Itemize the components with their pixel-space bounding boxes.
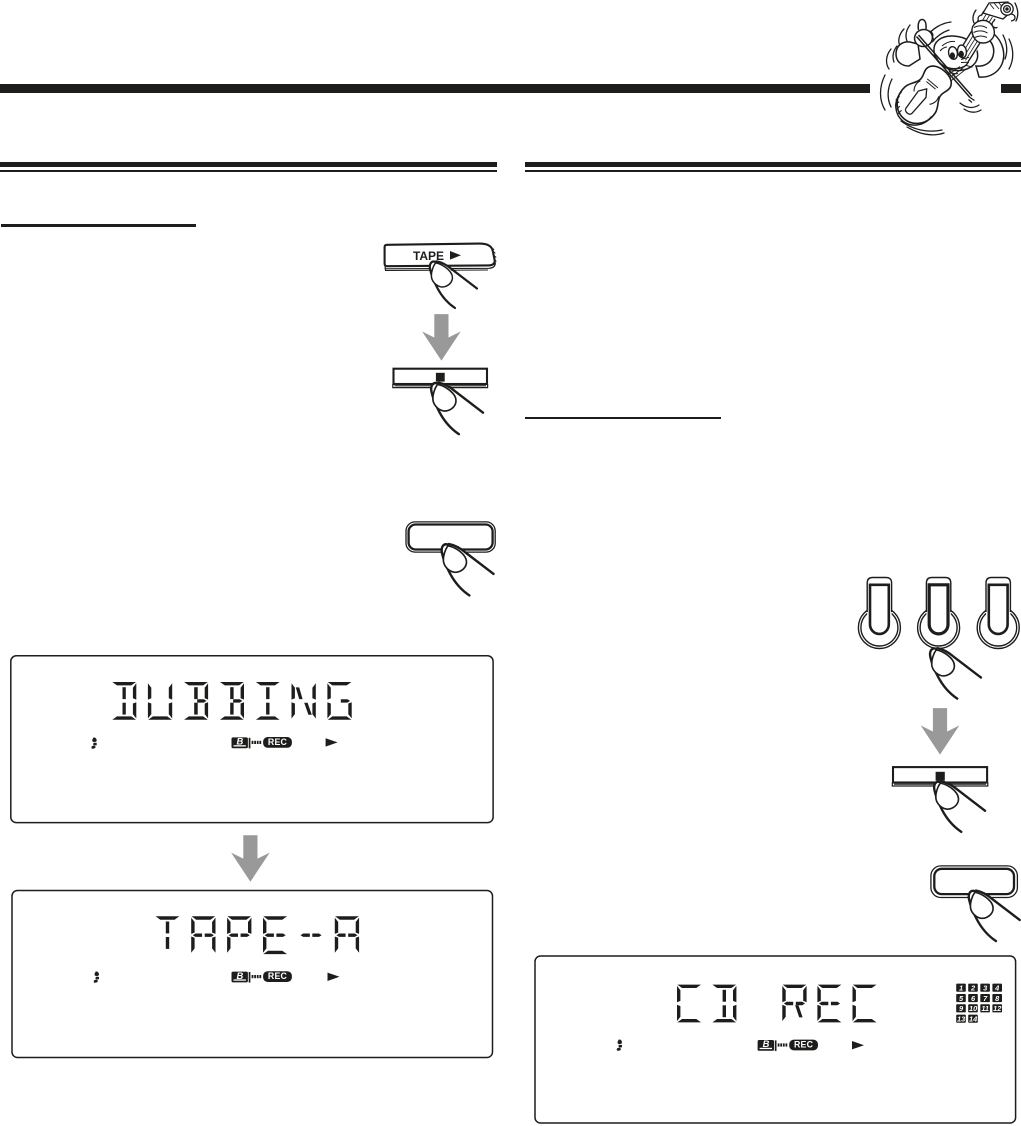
svg-text:B: B bbox=[763, 1038, 770, 1049]
svg-text:14: 14 bbox=[969, 1014, 977, 1023]
svg-text:12: 12 bbox=[993, 1004, 1002, 1013]
svg-text:TAPE: TAPE bbox=[413, 249, 444, 263]
svg-text:REC: REC bbox=[268, 971, 288, 981]
svg-text:11: 11 bbox=[981, 1004, 989, 1013]
svg-text:4: 4 bbox=[994, 983, 999, 992]
svg-text:1: 1 bbox=[959, 983, 963, 992]
svg-text:B: B bbox=[237, 736, 244, 747]
svg-text:REC: REC bbox=[794, 1039, 814, 1049]
svg-text:REC: REC bbox=[268, 737, 288, 747]
svg-text:2: 2 bbox=[970, 983, 976, 992]
svg-text:10: 10 bbox=[969, 1004, 978, 1013]
svg-text:13: 13 bbox=[957, 1014, 966, 1023]
svg-text:B: B bbox=[237, 970, 244, 981]
